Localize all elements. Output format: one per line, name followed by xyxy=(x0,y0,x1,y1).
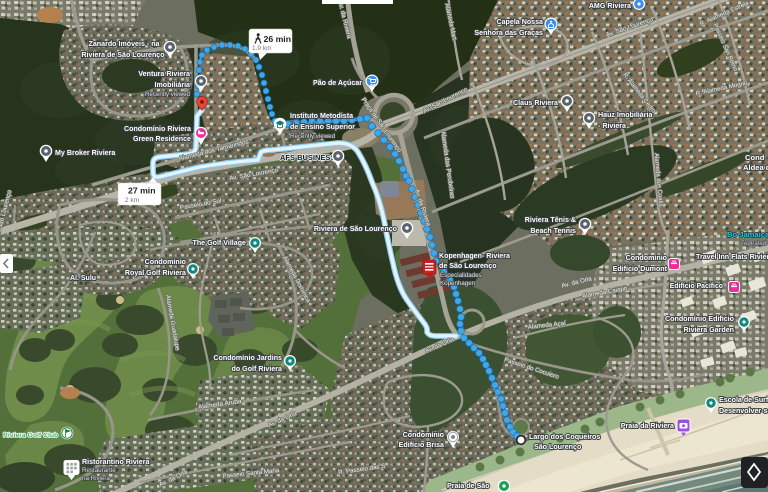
svg-text:AMG Riviera: AMG Riviera xyxy=(589,2,631,10)
svg-text:Riviera Golf Club: Riviera Golf Club xyxy=(3,432,58,439)
svg-text:1.9 km: 1.9 km xyxy=(252,45,272,52)
svg-text:Escola de Surf: Escola de Surf xyxy=(719,396,768,404)
svg-text:Capela Nossa: Capela Nossa xyxy=(496,18,543,26)
svg-text:de Ensino Superior: de Ensino Superior xyxy=(290,123,355,131)
svg-text:Riviera de São Lourenço: Riviera de São Lourenço xyxy=(81,51,165,59)
svg-text:Recently viewed: Recently viewed xyxy=(145,91,191,98)
svg-text:Condomínio Edifício: Condomínio Edifício xyxy=(665,315,735,323)
svg-text:na Riviera: na Riviera xyxy=(82,475,110,482)
svg-text:Al. Sulu: Al. Sulu xyxy=(70,275,96,282)
svg-text:Riviera Tênis &: Riviera Tênis & xyxy=(525,216,576,224)
svg-text:My Broker Riviera: My Broker Riviera xyxy=(55,149,115,157)
svg-text:Edifício Brisa: Edifício Brisa xyxy=(399,441,444,449)
svg-text:Condomínio Jardins: Condomínio Jardins xyxy=(213,354,282,362)
svg-text:Condomínio: Condomínio xyxy=(626,254,668,262)
svg-text:Green Residence: Green Residence xyxy=(133,135,191,143)
svg-text:São Lourenço: São Lourenço xyxy=(534,443,582,451)
svg-text:Zanardo Imóveis - na: Zanardo Imóveis - na xyxy=(89,40,160,48)
svg-text:Largo dos Coqueiros: Largo dos Coqueiros xyxy=(529,433,600,441)
svg-text:Desenvolver-se: Desenvolver-se xyxy=(719,407,768,415)
svg-text:Condomínio: Condomínio xyxy=(403,431,445,439)
svg-text:Beach Tennis: Beach Tennis xyxy=(530,227,576,235)
svg-text:27 min: 27 min xyxy=(128,186,156,196)
svg-text:do Golf Riviera: do Golf Riviera xyxy=(232,365,283,373)
svg-text:Bo Jamaica: Bo Jamaica xyxy=(727,230,768,239)
svg-text:Recently viewed: Recently viewed xyxy=(290,133,336,140)
svg-text:26 min: 26 min xyxy=(264,34,292,44)
svg-text:Condomínio: Condomínio xyxy=(145,258,187,266)
svg-text:AFS BUSINESS: AFS BUSINESS xyxy=(280,153,335,162)
svg-text:Pão de Açúcar: Pão de Açúcar xyxy=(313,79,362,87)
svg-text:Claus Riviera: Claus Riviera xyxy=(513,99,558,107)
svg-text:de São Lourenço: de São Lourenço xyxy=(439,262,497,270)
svg-text:Riviera de São Lourenço: Riviera de São Lourenço xyxy=(314,225,398,233)
svg-text:Senhora das Graças: Senhora das Graças xyxy=(474,29,543,37)
svg-text:Riviera Garden: Riviera Garden xyxy=(684,326,734,334)
svg-text:Travel Inn Flats Riviera: Travel Inn Flats Riviera xyxy=(696,253,768,261)
svg-text:Top rated: Top rated xyxy=(741,241,766,247)
svg-text:Edifício Pacífico: Edifício Pacífico xyxy=(670,283,723,290)
svg-text:Ristorantino Riviera: Ristorantino Riviera xyxy=(82,458,149,466)
svg-text:Praia da Riviera: Praia da Riviera xyxy=(621,422,674,430)
svg-text:Condomínio Riviera: Condomínio Riviera xyxy=(124,125,191,133)
svg-text:Instituto Metodista: Instituto Metodista xyxy=(290,112,353,120)
svg-text:Kopenhagen- Riviera: Kopenhagen- Riviera xyxy=(439,252,510,260)
svg-text:Edifício Dumont: Edifício Dumont xyxy=(613,265,668,273)
svg-text:2 km: 2 km xyxy=(125,197,139,204)
svg-text:- Riviera: - Riviera xyxy=(598,122,626,130)
svg-text:The Golf Village: The Golf Village xyxy=(193,239,247,247)
svg-text:Imobiliária: Imobiliária xyxy=(155,81,191,89)
svg-text:Aldea d: Aldea d xyxy=(743,163,768,172)
svg-text:Kopenhagen: Kopenhagen xyxy=(440,280,476,287)
svg-text:Praia de São: Praia de São xyxy=(447,482,490,490)
svg-text:Especialidades: Especialidades xyxy=(440,272,482,279)
svg-text:Restaurante: Restaurante xyxy=(82,467,116,474)
svg-text:Cond: Cond xyxy=(745,153,765,162)
svg-text:Ventura Riviera: Ventura Riviera xyxy=(138,70,190,78)
svg-text:Royal Golf Riviera: Royal Golf Riviera xyxy=(125,269,186,277)
svg-text:Hauz Imobiliária: Hauz Imobiliária xyxy=(598,111,652,119)
